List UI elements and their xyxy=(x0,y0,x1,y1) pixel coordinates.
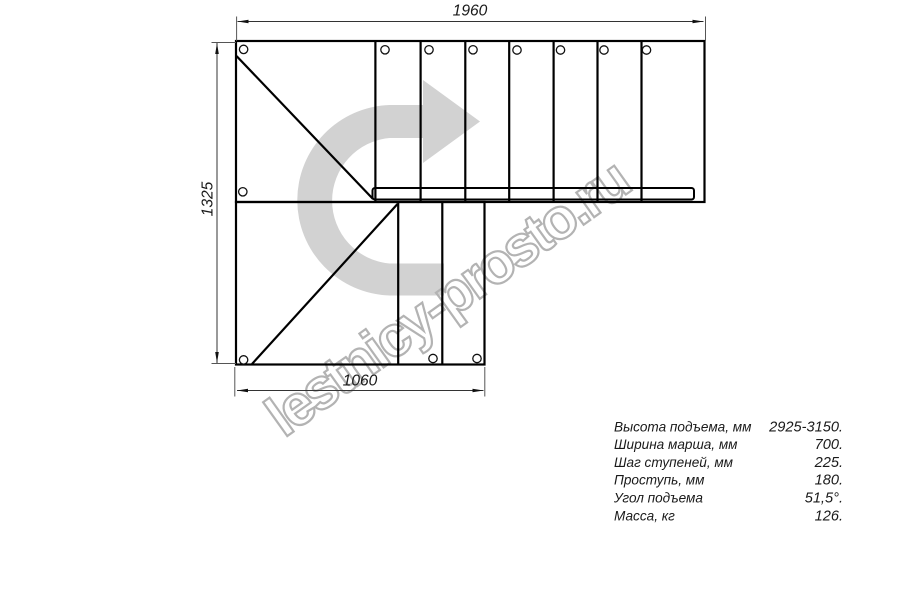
svg-text:2925-3150.: 2925-3150. xyxy=(768,419,843,435)
svg-text:Проступь, мм: Проступь, мм xyxy=(614,473,705,488)
svg-text:180.: 180. xyxy=(815,473,843,489)
svg-text:1960: 1960 xyxy=(453,3,488,20)
svg-text:126.: 126. xyxy=(815,508,843,524)
svg-text:1060: 1060 xyxy=(343,373,378,390)
svg-text:51,5°.: 51,5°. xyxy=(805,491,843,507)
svg-text:700.: 700. xyxy=(815,437,843,453)
svg-text:Высота подъема, мм: Высота подъема, мм xyxy=(614,419,752,434)
svg-text:Шаг ступеней, мм: Шаг ступеней, мм xyxy=(614,455,734,470)
svg-text:Ширина марша, мм: Ширина марша, мм xyxy=(614,437,738,452)
svg-text:1325: 1325 xyxy=(200,181,217,216)
svg-text:Угол подъема: Угол подъема xyxy=(613,491,703,506)
svg-text:Масса, кг: Масса, кг xyxy=(614,508,675,523)
svg-text:225.: 225. xyxy=(814,455,843,471)
